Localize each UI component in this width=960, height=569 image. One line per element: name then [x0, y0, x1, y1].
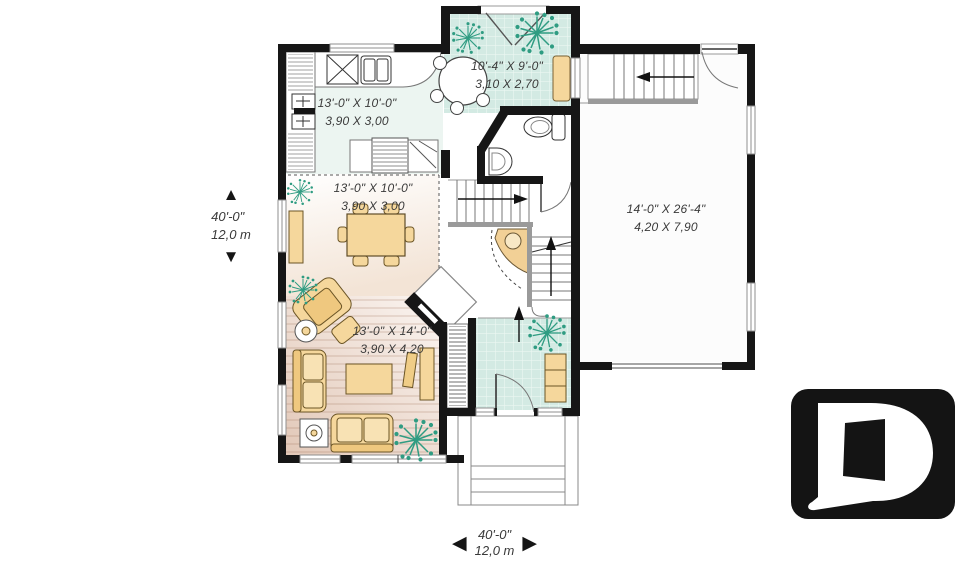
floor-plan-canvas: 10'-4" X 9'-0" 3,10 X 2,70 13'-0" X 10'-… — [0, 0, 960, 569]
coffee-table — [346, 364, 392, 394]
staircase-garage — [580, 54, 698, 104]
window-dining — [278, 200, 286, 252]
garage-size-metric: 4,20 X 7,90 — [606, 218, 726, 236]
window-living-bottom-2 — [352, 455, 446, 463]
arrow-up-icon: ▲ — [223, 186, 240, 203]
garage-size-imperial: 14'-0" X 26'-4" — [606, 200, 726, 218]
kitchen-peninsula — [350, 138, 438, 173]
dining-label: 13'-0" X 10'-0" 3,90 X 3,00 — [313, 179, 433, 215]
window-kitchen — [330, 44, 394, 52]
sofa — [293, 350, 326, 412]
arrow-left-icon: ◀ — [452, 534, 467, 553]
kitchen-sink — [327, 55, 358, 84]
porch-landing — [471, 416, 565, 466]
dining-table — [347, 214, 405, 256]
garage-door — [612, 364, 722, 368]
dining-size-imperial: 13'-0" X 10'-0" — [313, 179, 433, 197]
window-garage-1 — [747, 106, 755, 154]
sidelight-left — [476, 408, 494, 416]
lamp-table — [300, 419, 328, 447]
width-imperial: 40'-0" — [478, 527, 511, 543]
dishwasher — [373, 139, 407, 172]
sidelight-right — [538, 408, 562, 416]
stove — [361, 56, 391, 84]
width-dimension: ◀ 40'-0" 12,0 m ▶ — [452, 527, 537, 560]
side-table-round — [295, 320, 317, 342]
window-garage-2 — [747, 283, 755, 331]
nook-size-metric: 3,10 X 2,70 — [447, 75, 567, 93]
living-size-imperial: 13'-0" X 14'-0" — [332, 322, 452, 340]
arrow-right-icon: ▶ — [522, 534, 537, 553]
loveseat — [331, 414, 393, 452]
width-metric: 12,0 m — [475, 543, 515, 559]
depth-dimension: ▲ 40'-0" 12,0 m ▼ — [192, 186, 270, 265]
depth-metric: 12,0 m — [211, 226, 251, 244]
porch — [458, 416, 578, 505]
porch-rail-right — [565, 416, 578, 505]
brand-logo-d-icon — [791, 389, 955, 519]
porch-steps — [471, 479, 565, 505]
brand-logo — [791, 389, 955, 519]
living-label: 13'-0" X 14'-0" 3,90 X 4,20 — [332, 322, 452, 358]
depth-dimension-text: 40'-0" 12,0 m — [211, 208, 251, 243]
entry-bench — [545, 354, 566, 402]
living-size-metric: 3,90 X 4,20 — [332, 340, 452, 358]
kitchen-label: 13'-0" X 10'-0" 3,90 X 3,00 — [297, 94, 417, 130]
nook-label: 10'-4" X 9'-0" 3,10 X 2,70 — [447, 57, 567, 93]
nook-size-imperial: 10'-4" X 9'-0" — [447, 57, 567, 75]
arrow-down-icon: ▼ — [223, 248, 240, 265]
window-living-bottom-1 — [300, 455, 340, 463]
sideboard — [289, 211, 303, 263]
kitchen-size-metric: 3,90 X 3,00 — [297, 112, 417, 130]
kitchen-size-imperial: 13'-0" X 10'-0" — [297, 94, 417, 112]
dining-size-metric: 3,90 X 3,00 — [313, 197, 433, 215]
window-nook-side — [571, 58, 580, 98]
garage-label: 14'-0" X 26'-4" 4,20 X 7,90 — [606, 200, 726, 236]
window-living-1 — [278, 302, 286, 348]
depth-imperial: 40'-0" — [211, 208, 251, 226]
window-living-2 — [278, 385, 286, 435]
width-dimension-text: 40'-0" 12,0 m — [475, 527, 515, 560]
